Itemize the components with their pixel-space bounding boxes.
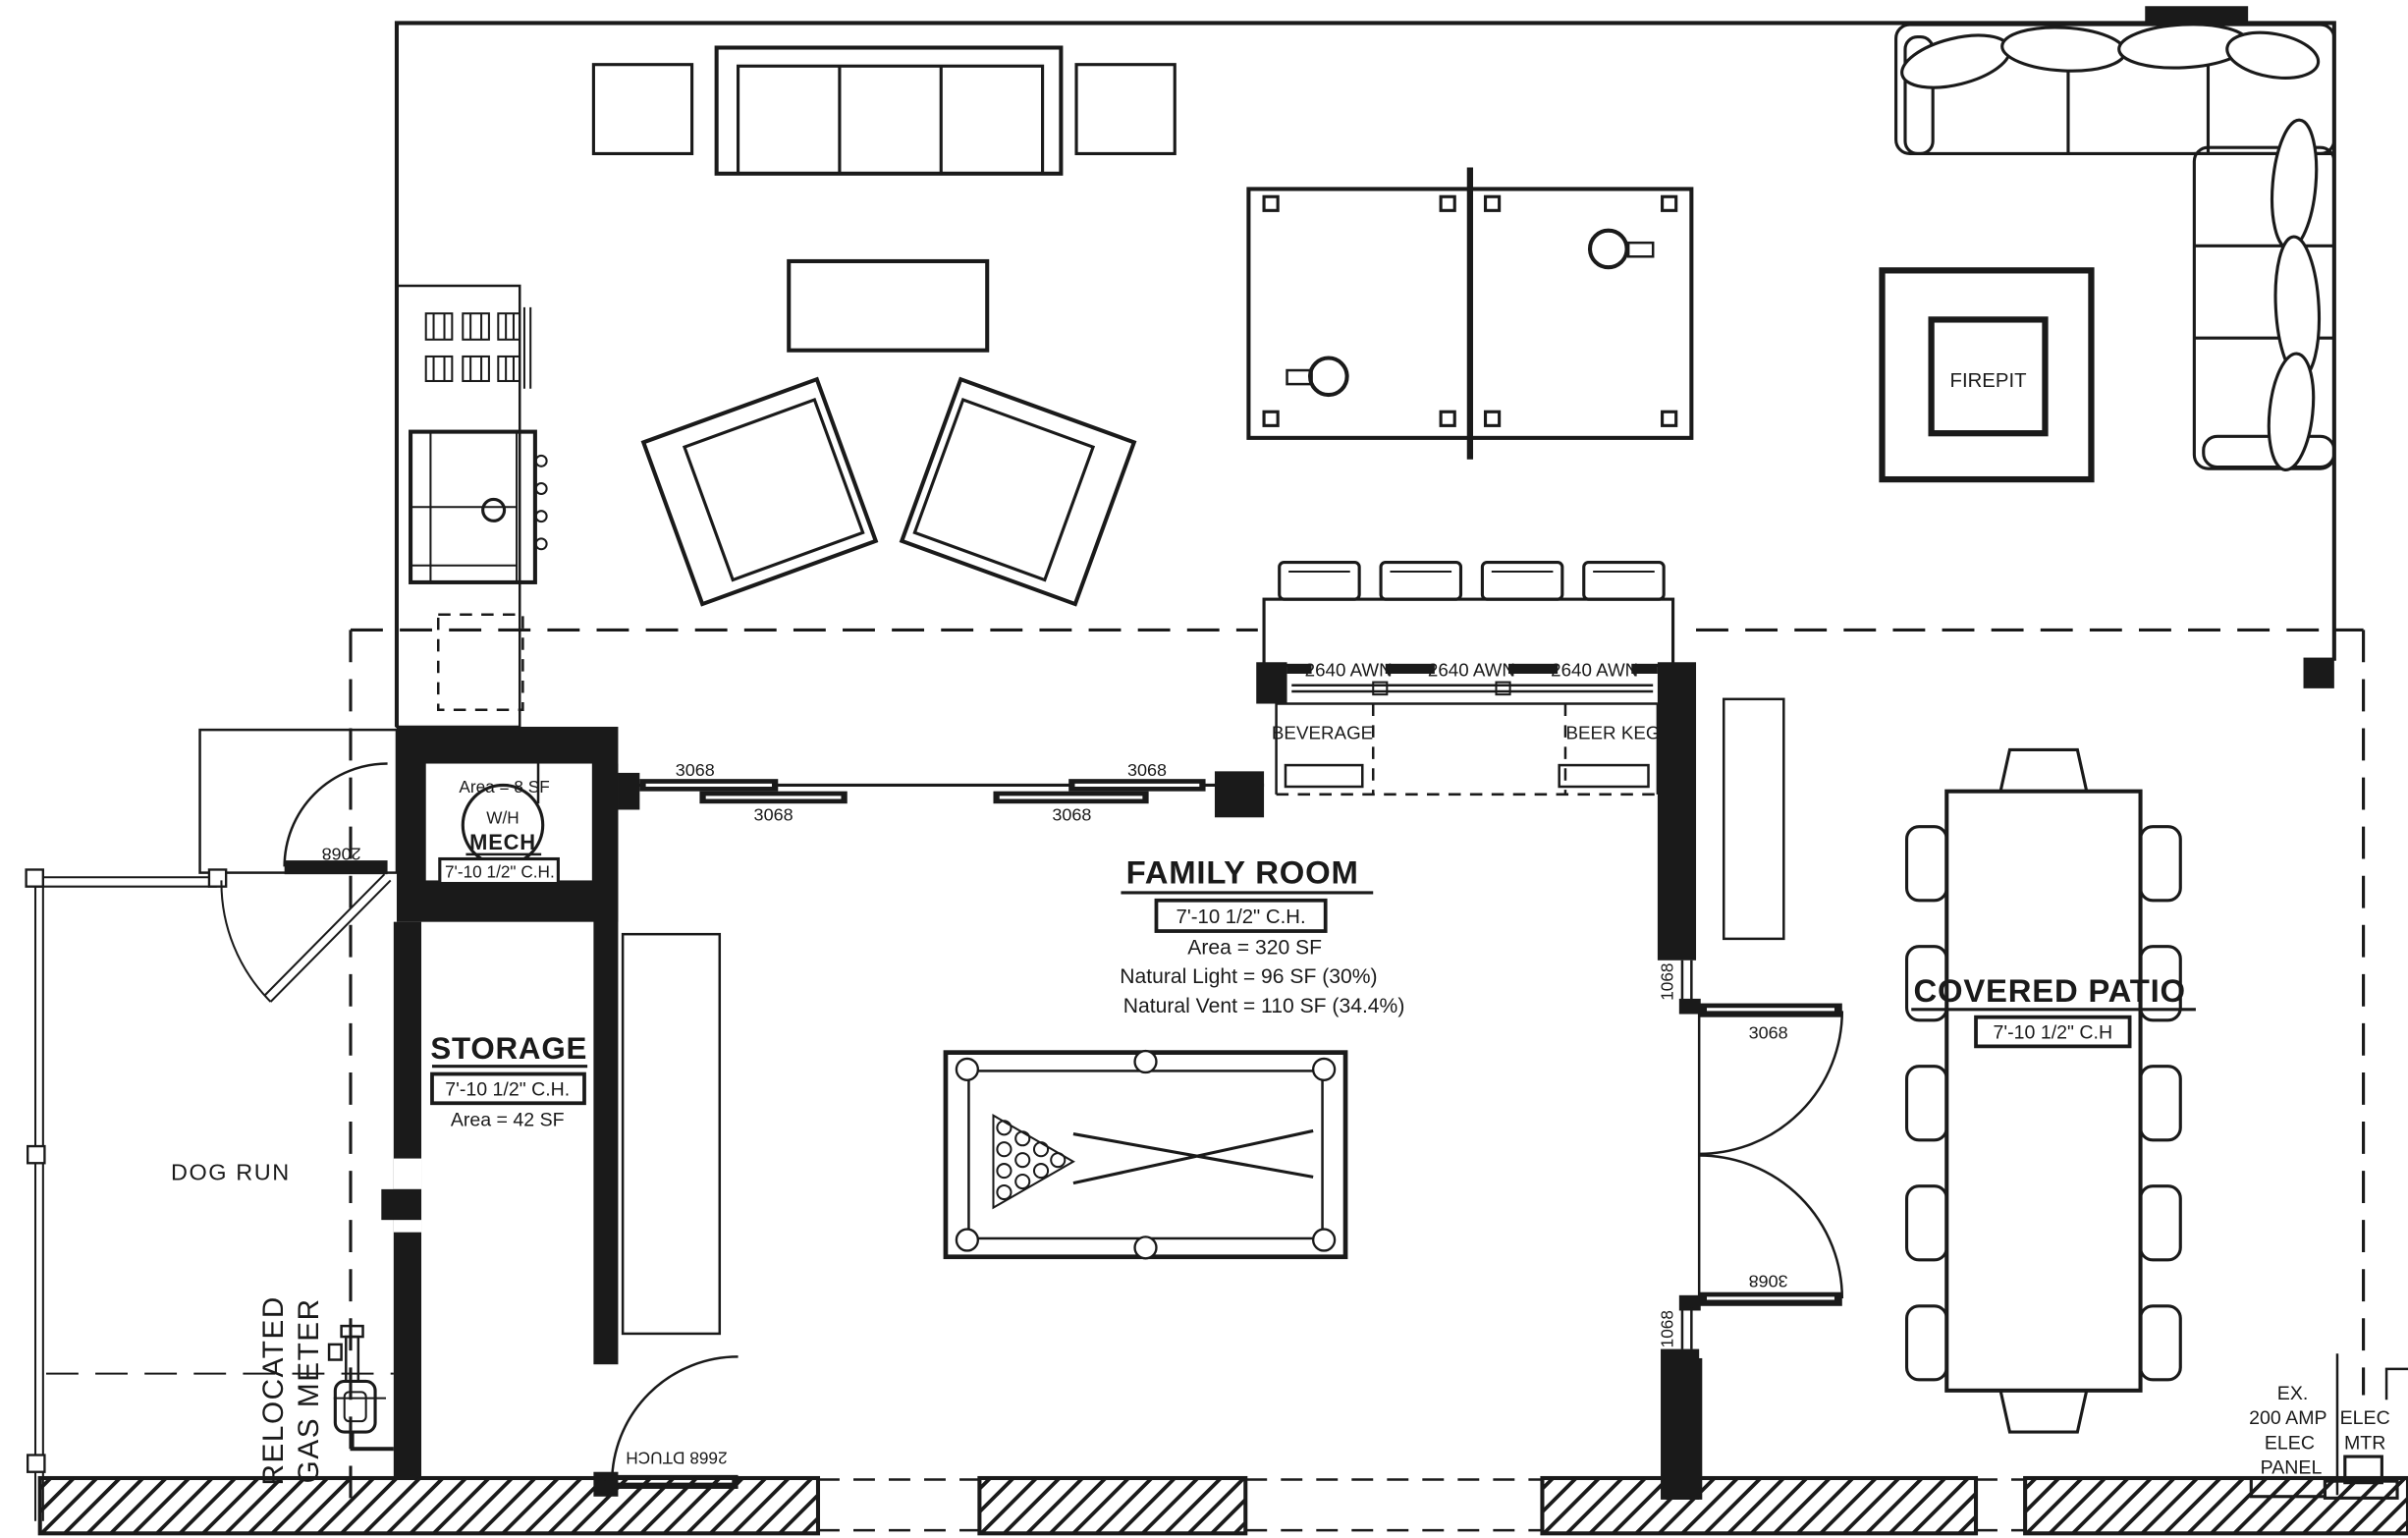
pocket	[1135, 1236, 1157, 1258]
awning-window-label: 2640 AWN	[1305, 659, 1393, 680]
floor-plan-sheet: FIREPIT 2640 AWN 2640 AWN 2640 AWN BEVER…	[0, 0, 2408, 1538]
gate-door	[264, 874, 390, 1002]
sectional-sofa	[1896, 22, 2334, 472]
mech-room-label: MECH	[469, 830, 536, 854]
family-room-label: FAMILY ROOM	[1126, 854, 1359, 891]
dutch-door-label: 2668 DTUCH	[626, 1448, 727, 1467]
bar-counter	[1264, 599, 1672, 665]
dining-chair	[2141, 827, 2181, 901]
dining-table	[1946, 792, 2140, 1391]
pocket	[1135, 1051, 1157, 1072]
family-room-ceiling-label: 7'-10 1/2" C.H.	[1177, 906, 1306, 928]
sliding-door-label: 3068	[1127, 760, 1167, 780]
pool-table-icon	[946, 1051, 1345, 1258]
patio-island-counter	[1724, 699, 1783, 939]
storage-area-label: Area = 42 SF	[451, 1110, 565, 1131]
site-wall-segment	[2145, 6, 2248, 22]
sliding-door-label: 3068	[1052, 804, 1091, 824]
sidelight-window: 1068	[1658, 1307, 1692, 1348]
outdoor-sofa	[717, 47, 1062, 173]
paddle-icon	[1287, 358, 1347, 396]
beer-keg-label: BEER KEG	[1565, 723, 1660, 743]
wall-segment	[1658, 662, 1696, 961]
beverage-counter: BEVERAGE BEER KEG	[1272, 704, 1661, 795]
coffee-table	[789, 261, 987, 351]
pocket	[1313, 1059, 1335, 1080]
sliding-door-label: 3068	[676, 760, 715, 780]
gate-swing-arc	[221, 880, 270, 1002]
grill-icon	[410, 432, 547, 582]
outdoor-bar: 2640 AWN 2640 AWN 2640 AWN BEVERAGE BEER…	[1256, 563, 1672, 795]
storage-east-wall	[593, 764, 618, 1365]
covered-patio: COVERED PATIO 7'-10 1/2" C.H	[1907, 749, 2196, 1432]
appliance-front	[1286, 765, 1362, 787]
beverage-fridge-label: BEVERAGE	[1272, 723, 1373, 743]
dining-chair	[2141, 1186, 2181, 1260]
pocket	[957, 1059, 978, 1080]
pocket	[1313, 1230, 1335, 1251]
french-door-label: 3068	[1749, 1023, 1788, 1043]
entry-door-label: 2068	[322, 845, 361, 864]
water-heater-label: W/H	[486, 808, 519, 828]
hatch-lines	[2025, 1478, 2408, 1533]
gas-meter-annotation: RELOCATED GAS METER	[257, 1295, 394, 1485]
family-room-area-label: Area = 320 SF	[1187, 937, 1322, 960]
floor-plan-drawing: FIREPIT 2640 AWN 2640 AWN 2640 AWN BEVER…	[0, 0, 2408, 1538]
bar-stool	[1381, 563, 1460, 600]
french-door: 3068	[1699, 1004, 1842, 1154]
ping-pong-table-icon	[1248, 168, 1691, 460]
storage-room-label: STORAGE	[430, 1031, 587, 1066]
dog-run-fence	[33, 877, 216, 1520]
entry-landing: 2068	[200, 730, 397, 874]
family-room-light-label: Natural Light = 96 SF (30%)	[1120, 965, 1377, 988]
storage-ceiling-label: 7'-10 1/2" C.H.	[445, 1078, 570, 1100]
firepit-icon: FIREPIT	[1883, 270, 2092, 479]
appliance-front	[1560, 765, 1649, 787]
bar-stool	[1482, 563, 1561, 600]
dutch-door: 2668 DTUCH	[593, 1356, 738, 1496]
bar-stools	[1280, 563, 1664, 600]
elec-panel-label: EX.	[2277, 1383, 2309, 1404]
side-table	[593, 65, 691, 154]
sliding-door-wall: 3068 3068 3068 3068	[618, 760, 1264, 824]
sidelight-label: 1068	[1658, 1310, 1677, 1347]
lounge-chair	[643, 379, 876, 604]
awning-window-label: 2640 AWN	[1551, 659, 1638, 680]
outdoor-living-set	[593, 47, 1175, 604]
outdoor-kitchen	[397, 286, 547, 727]
gas-meter-icon	[329, 1326, 394, 1449]
family-room-vent-label: Natural Vent = 110 SF (34.4%)	[1123, 995, 1405, 1017]
gas-meter-label-line2: GAS METER	[293, 1297, 325, 1483]
mech-area-label: Area = 8 SF	[459, 777, 549, 796]
fence-post	[27, 1146, 44, 1163]
french-door-label: 3068	[1749, 1271, 1788, 1291]
sidelight-window: 1068	[1658, 961, 1692, 1002]
wall-segment	[1666, 1358, 1703, 1500]
fence-post	[27, 869, 43, 886]
bar-stool	[1280, 563, 1359, 600]
paddle-icon	[1590, 231, 1653, 268]
dining-chair	[2000, 749, 2087, 791]
hatch-lines	[1542, 1478, 1976, 1533]
storage-counter	[623, 934, 720, 1334]
dining-chair	[1907, 1186, 1947, 1260]
gas-meter-label-line1: RELOCATED	[257, 1295, 290, 1485]
roof-post	[2304, 658, 2334, 688]
dog-run-label: DOG RUN	[171, 1159, 291, 1184]
sliding-door-label: 3068	[754, 804, 794, 824]
covered-patio-ceiling-label: 7'-10 1/2" C.H	[1994, 1022, 2113, 1044]
side-table	[1076, 65, 1175, 154]
family-room: FAMILY ROOM 7'-10 1/2" C.H. Area = 320 S…	[946, 854, 1404, 1259]
fence-post	[27, 1456, 44, 1472]
french-door: 3068	[1699, 1155, 1842, 1305]
dining-chair	[2141, 1067, 2181, 1140]
firepit-label: FIREPIT	[1950, 370, 2027, 392]
elec-panel-label: ELEC	[2265, 1432, 2315, 1454]
dining-chair	[2000, 1391, 2087, 1432]
dining-chair	[2141, 1306, 2181, 1380]
dining-chair	[1907, 1067, 1947, 1140]
sliding-door: 3068 3068	[639, 760, 847, 824]
hatch-lines	[979, 1478, 1245, 1533]
wall-post	[1256, 662, 1286, 703]
mech-ceiling-label: 7'-10 1/2" C.H.	[445, 861, 555, 881]
window-glazing	[1291, 686, 1653, 691]
elec-meter-label: MTR	[2344, 1432, 2385, 1454]
dining-chair	[1907, 1306, 1947, 1380]
sidelight-label: 1068	[1658, 963, 1677, 1001]
fence-post	[209, 869, 226, 886]
covered-patio-label: COVERED PATIO	[1913, 972, 2185, 1009]
elec-panel-label: 200 AMP	[2249, 1407, 2326, 1429]
sink-grate-icon	[426, 307, 530, 389]
lounge-chair	[902, 379, 1134, 604]
sliding-door: 3068 3068	[993, 760, 1205, 824]
bar-stool	[1584, 563, 1664, 600]
mech-room: Area = 8 SF W/H MECH 7'-10 1/2" C.H.	[397, 727, 618, 922]
elec-meter-label: ELEC	[2340, 1407, 2390, 1429]
awning-window-label: 2640 AWN	[1428, 659, 1515, 680]
dining-chair	[1907, 827, 1947, 901]
pocket	[957, 1230, 978, 1251]
elec-panel-label: PANEL	[2261, 1456, 2323, 1478]
